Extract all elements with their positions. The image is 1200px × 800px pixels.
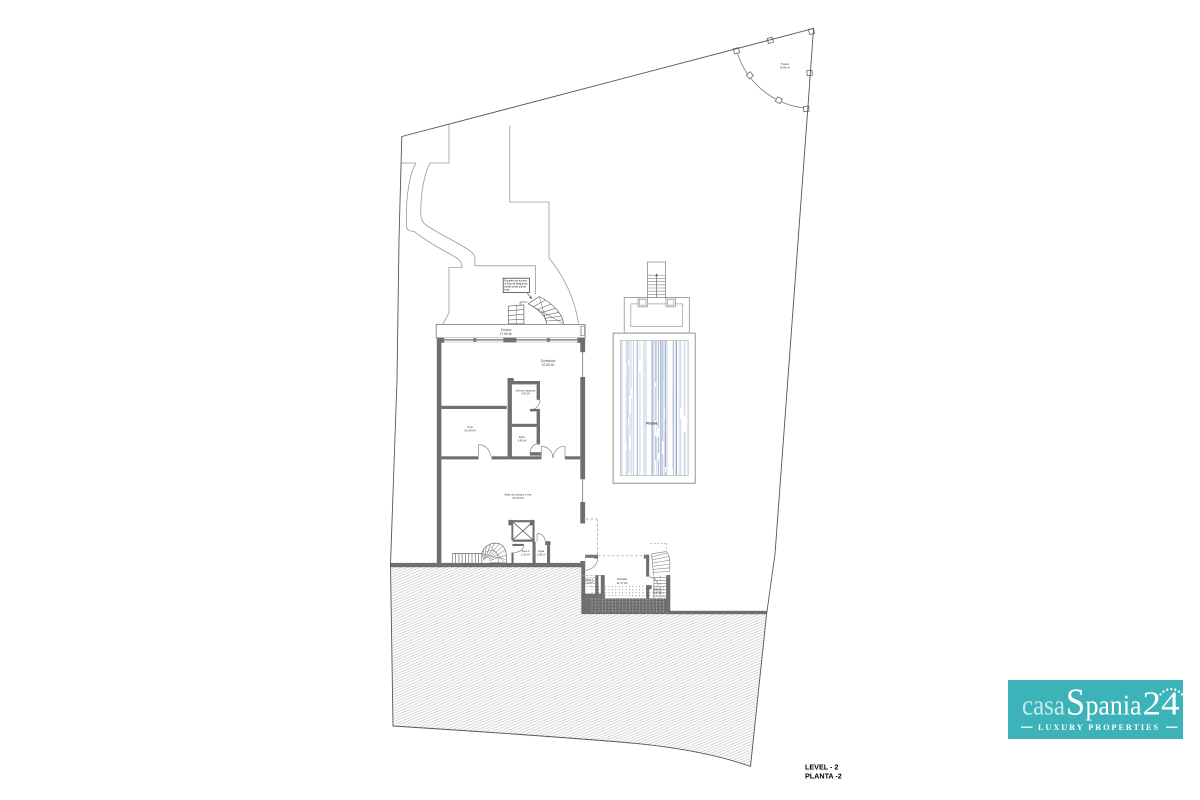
svg-text:Piscina: Piscina <box>646 422 657 426</box>
svg-text:20,66 m²: 20,66 m² <box>780 65 790 69</box>
svg-text:17,80 M²: 17,80 M² <box>500 332 513 336</box>
svg-text:S: S <box>1066 682 1085 724</box>
svg-text:baja: baja <box>504 288 509 292</box>
svg-text:casa: casa <box>1022 690 1065 722</box>
svg-text:4,80 M²: 4,80 M² <box>521 393 530 396</box>
svg-text:2,97 M²: 2,97 M² <box>654 592 662 595</box>
svg-text:LEVEL - 2: LEVEL - 2 <box>805 762 838 771</box>
svg-text:1,60 M²: 1,60 M² <box>585 582 593 585</box>
svg-text:4,85 M²: 4,85 M² <box>518 438 527 442</box>
svg-text:24: 24 <box>1143 686 1180 723</box>
svg-text:2,25 m²: 2,25 m² <box>521 552 530 556</box>
svg-text:74,20 M²: 74,20 M² <box>512 496 524 500</box>
svg-text:pania: pania <box>1086 690 1142 722</box>
svg-text:57,60 M²: 57,60 M² <box>542 363 555 367</box>
svg-text:PLANTA -2: PLANTA -2 <box>805 772 842 781</box>
svg-text:33,40 M²: 33,40 M² <box>464 429 476 433</box>
svg-text:11,37 M²: 11,37 M² <box>617 581 628 585</box>
svg-text:LUXURY PROPERTIES: LUXURY PROPERTIES <box>1038 723 1160 732</box>
svg-text:Baño: Baño <box>519 435 526 439</box>
svg-text:1,90 m²: 1,90 m² <box>537 552 546 556</box>
svg-text:Puerta: Puerta <box>781 62 789 66</box>
